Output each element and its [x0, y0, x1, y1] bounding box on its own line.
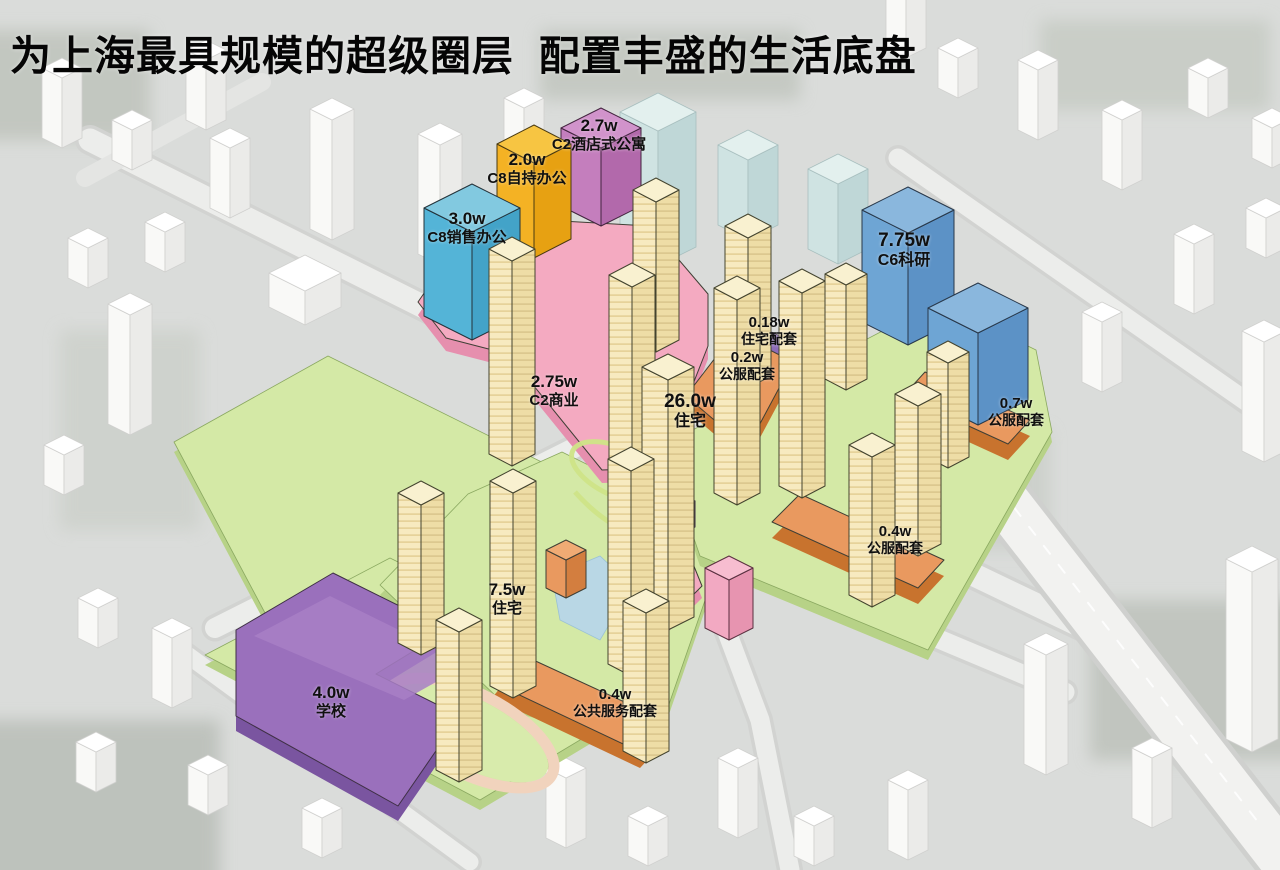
- label-name: 住宅: [489, 600, 526, 617]
- building-service-midrise: [546, 540, 586, 598]
- label-value: 4.0w: [313, 683, 350, 703]
- label-name: 公服配套: [867, 540, 923, 556]
- residential-tower: [849, 433, 895, 607]
- label-value: 0.7w: [988, 395, 1044, 412]
- residential-tower: [714, 276, 760, 505]
- label-value: 3.0w: [427, 209, 506, 229]
- label-c8-sales-office: 3.0w C8销售办公: [427, 209, 506, 246]
- residential-tower: [623, 589, 669, 763]
- label-value: 0.2w: [719, 349, 775, 366]
- label-name: 学校: [313, 703, 350, 720]
- label-value: 26.0w: [664, 391, 716, 413]
- label-public-service-04w: 0.4w 公服配套: [867, 523, 923, 557]
- label-value: 2.7w: [552, 116, 646, 136]
- label-public-service-07w: 0.7w 公服配套: [988, 395, 1044, 429]
- label-public-service-amenity: 0.4w 公共服务配套: [573, 686, 657, 720]
- slide: 为上海最具规模的超级圈层 配置丰盛的生活底盘 3.0w C8销售办公 2.0w …: [0, 0, 1280, 870]
- label-name: 住宅: [664, 413, 716, 432]
- page-title: 为上海最具规模的超级圈层 配置丰盛的生活底盘: [10, 22, 917, 82]
- residential-tower: [825, 263, 867, 390]
- label-value: 7.75w: [878, 230, 930, 252]
- residential-tower: [779, 269, 825, 498]
- label-c2-hotel-apartment: 2.7w C2酒店式公寓: [552, 116, 646, 153]
- label-value: 0.18w: [741, 314, 797, 331]
- label-c6-research: 7.75w C6科研: [878, 230, 930, 271]
- label-value: 7.5w: [489, 580, 526, 600]
- label-name: 公服配套: [988, 412, 1044, 428]
- label-residential-26w: 26.0w 住宅: [664, 391, 716, 432]
- label-residential-75w: 7.5w 住宅: [489, 580, 526, 617]
- label-residential-support: 0.18w 住宅配套: [741, 314, 797, 348]
- label-c8-self-office: 2.0w C8自持办公: [487, 150, 566, 187]
- label-name: C8自持办公: [487, 170, 566, 187]
- label-value: 0.4w: [573, 686, 657, 703]
- podium-tower-pink: [705, 556, 753, 640]
- label-name: 公共服务配套: [573, 703, 657, 719]
- label-value: 0.4w: [867, 523, 923, 540]
- label-name: C8销售办公: [427, 229, 506, 246]
- label-c2-commercial: 2.75w C2商业: [529, 372, 578, 409]
- label-value: 2.75w: [529, 372, 578, 392]
- label-name: 住宅配套: [741, 331, 797, 347]
- label-name: 公服配套: [719, 366, 775, 382]
- label-school: 4.0w 学校: [313, 683, 350, 720]
- label-name: C2酒店式公寓: [552, 136, 646, 153]
- residential-tower: [436, 608, 482, 782]
- label-name: C2商业: [529, 392, 578, 409]
- label-name: C6科研: [878, 252, 930, 271]
- label-public-service-02w: 0.2w 公服配套: [719, 349, 775, 383]
- residential-tower: [489, 237, 535, 466]
